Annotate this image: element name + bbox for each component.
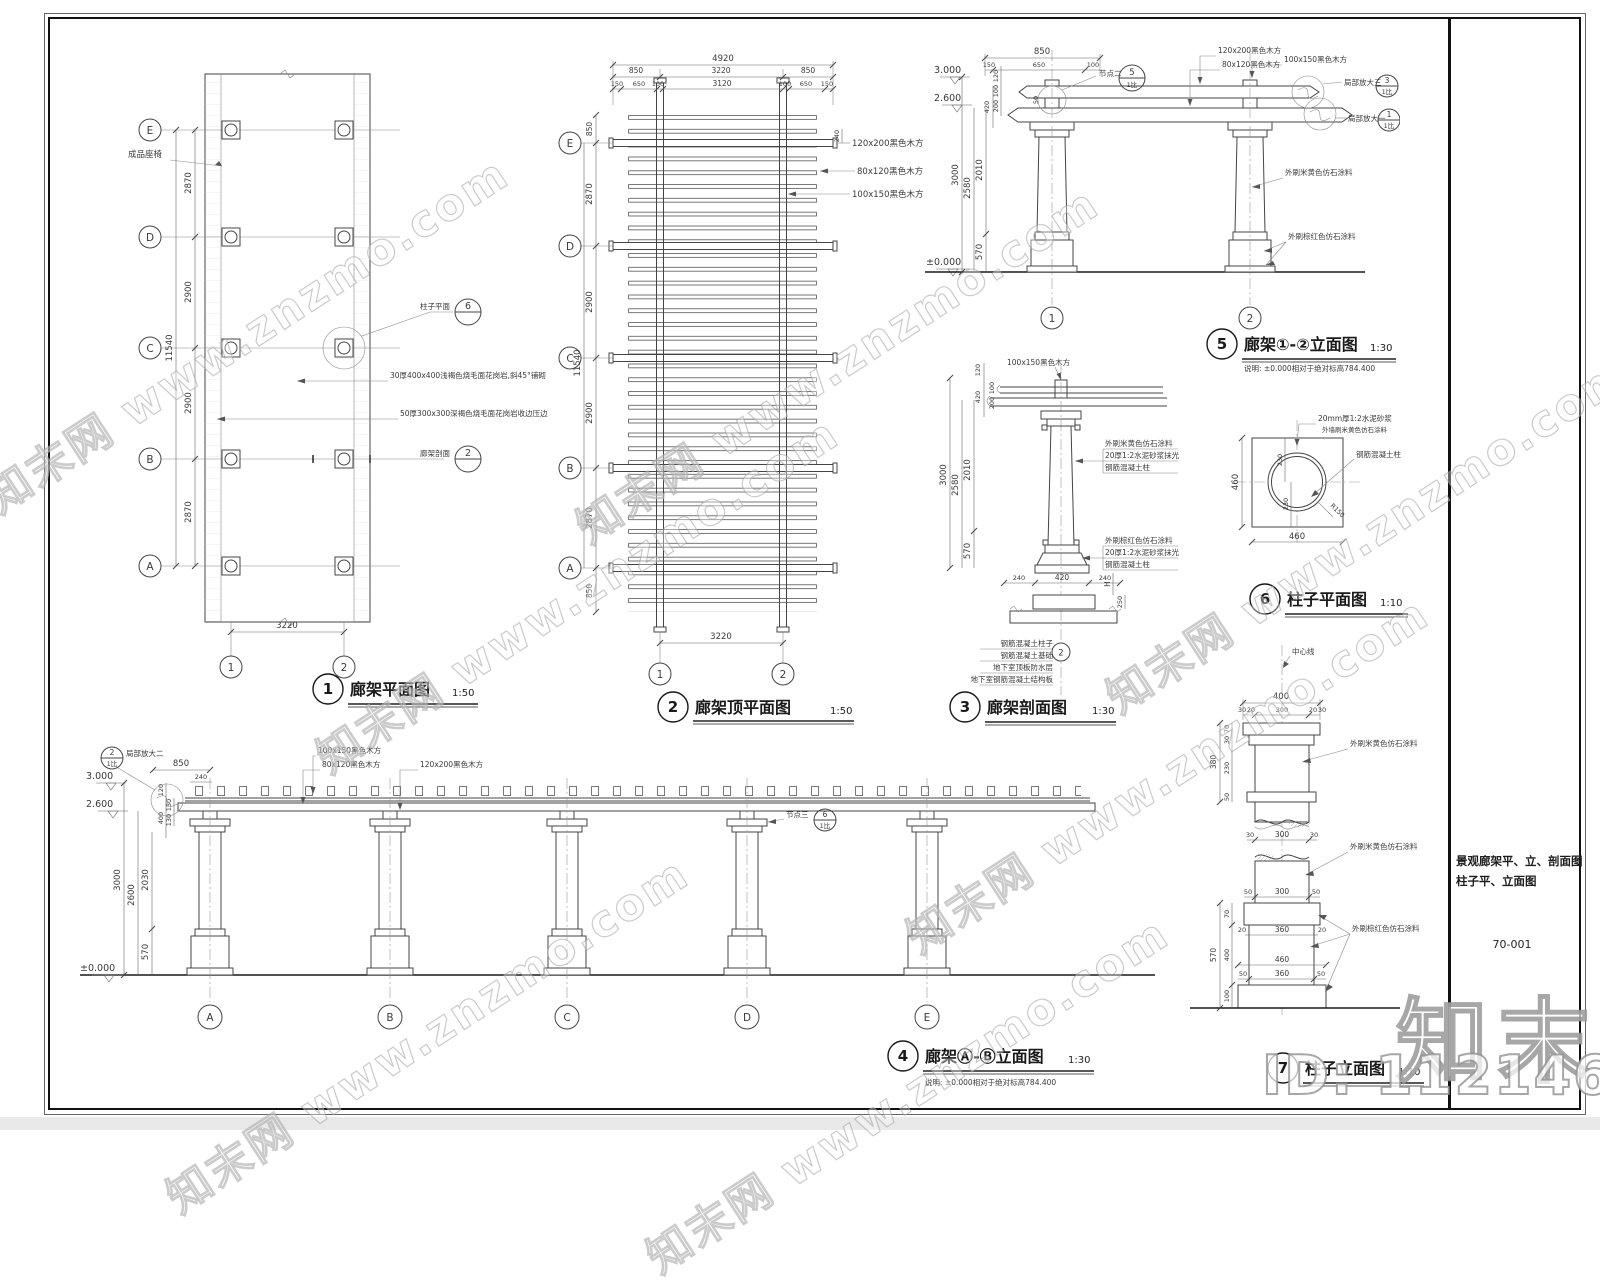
section-ref-no: 2: [465, 448, 471, 459]
axis-a: A: [206, 1012, 214, 1024]
colelev-labels: 外刷米黄色仿石涂料 外刷米黄色仿石涂料 外刷棕红色仿石涂料: [1302, 738, 1420, 992]
elevAB-structure: [80, 778, 1155, 1002]
dim-650: 650: [1033, 61, 1045, 69]
axis-1: 1: [1049, 313, 1056, 325]
section-title: 3 廊架剖面图 1:30: [950, 692, 1116, 725]
elev12-structure: [925, 50, 1365, 305]
axis-2: 2: [1247, 313, 1254, 325]
dim-2010: 2010: [975, 159, 985, 181]
dim-2600: 2600: [127, 884, 137, 906]
dim-230: 230: [1223, 762, 1231, 774]
wood-120x200-label: 120x200黑色木方: [420, 759, 484, 769]
axis-2: 2: [1058, 649, 1063, 659]
dim-570: 570: [141, 944, 151, 960]
mortar-label2: 20厚1:2水泥砂浆抹光: [1105, 547, 1180, 557]
paint-brown-label: 外刷棕红色仿石涂料: [1288, 231, 1356, 241]
dim-11540: 11540: [573, 349, 583, 376]
dim-460-left: 460: [1231, 474, 1241, 490]
colelev-top-piece: [1243, 723, 1320, 829]
dim-2870b: 2870: [585, 507, 595, 529]
dim-2870: 2870: [585, 183, 595, 205]
dim-850b: 850: [585, 584, 594, 599]
axis-1: 1: [228, 662, 235, 674]
dim-200: 200: [992, 100, 1000, 112]
roof-top-dims: 4920 850 3220 850 150 650 100 3120 100 6…: [610, 54, 836, 105]
title-text: 廊架①-②立面图: [1244, 335, 1358, 354]
dim-r50a: 50: [1239, 970, 1247, 978]
roof-left-dims: 850 2870 2900 2900 2870 850 11540: [573, 112, 599, 615]
basement-waterproof-label: 地下室顶板防水层: [993, 662, 1053, 672]
grid-label-d: D: [566, 241, 574, 253]
title-scale: 1:50: [452, 688, 474, 699]
dim-100: 100: [992, 85, 1000, 97]
node3-no: 6: [823, 810, 828, 819]
level-2600: 2.600: [86, 799, 113, 810]
dim-850a: 850: [629, 66, 644, 75]
dim-30b: 30: [1318, 706, 1326, 714]
wood-100x150-label: 100x150黑色木方: [318, 745, 382, 755]
dim-570: 570: [975, 244, 985, 260]
axis-d: D: [743, 1012, 751, 1024]
wood-100x150-label: 100x150黑色木方: [1284, 54, 1348, 64]
detail3-scale: 1比: [1382, 87, 1393, 96]
elevAB-axes: A B C D E: [198, 1005, 939, 1029]
dim-300: 300: [1276, 706, 1288, 714]
dim-230a: 230: [1276, 454, 1284, 466]
dim-n50b: 50: [1312, 888, 1320, 896]
node2-scale: 1比: [1127, 80, 1138, 89]
dim-2870: 2870: [184, 172, 194, 194]
dim-150b: 150: [821, 80, 833, 88]
title-no: 5: [1217, 335, 1227, 353]
column-plan-ref-no: 6: [465, 301, 471, 312]
level-2600: 2.600: [934, 93, 961, 104]
columns: [187, 811, 950, 975]
dim-3120: 3120: [712, 79, 731, 88]
grid-label-e: E: [567, 138, 574, 150]
dim-p20b: 20: [1318, 926, 1326, 934]
dim-100a: 100: [652, 80, 664, 88]
section-ref-label: 廊架剖面: [420, 448, 450, 458]
title-no: 7: [1278, 1059, 1288, 1077]
roof-bottom-axes: 3220 1 2: [649, 632, 794, 685]
axis-2: 2: [780, 669, 787, 681]
level-3000: 3.000: [86, 771, 113, 782]
title-block: 景观廊架平、立、剖面图 柱子平、立面图: [1456, 852, 1578, 891]
dim-q400: 400: [1223, 949, 1231, 961]
elev12-material-labels: 120x200黑色木方 80x120黑色木方 100x150黑色木方 外刷米黄色…: [1188, 45, 1356, 265]
dim-11540: 11540: [165, 334, 175, 361]
title-text: 廊架顶平面图: [695, 698, 791, 717]
paint-beige-wall-label: 外墙刷米黄色仿石涂料: [1322, 425, 1388, 434]
title-scale: 1:30: [1370, 343, 1392, 354]
cad-sheet: 景观廊架平、立、剖面图 柱子平、立面图 70-001: [0, 0, 1600, 1130]
dim-240b: 240: [1099, 574, 1111, 582]
dim-3000: 3000: [939, 464, 949, 486]
bench-label: 成品座椅: [128, 149, 163, 160]
dim-30a: 30: [1238, 706, 1246, 714]
dim-650a: 650: [633, 80, 645, 88]
dim-m30b: 30: [1310, 831, 1318, 839]
dim-q100: 100: [1223, 990, 1231, 1002]
mortar-label: 20厚1:2水泥砂浆抹光: [1105, 450, 1180, 460]
dim-r460: 460: [1275, 955, 1290, 964]
colplan-title: 6 柱子平面图 1:10: [1250, 584, 1408, 617]
basement-slab-label: 地下室钢筋混凝土结构板: [971, 674, 1054, 684]
dim-2580: 2580: [963, 177, 973, 199]
dim-p20a: 20: [1238, 926, 1246, 934]
elev12-levels: 3.000 2.600 ±0.000: [926, 65, 972, 276]
node2-no: 5: [1129, 68, 1134, 78]
column-plan-ref-label: 柱子平面: [420, 301, 450, 311]
dim-30: 30: [1223, 736, 1231, 744]
dim-420: 420: [974, 391, 982, 403]
title-text: 廊架剖面图: [987, 698, 1067, 717]
node2-label: 节点二: [1099, 69, 1122, 78]
plan-callouts: 成品座椅 柱子平面 6 30厚400x400浅褐色烧毛面花岗岩,斜45°铺砌 5…: [128, 149, 548, 472]
dim-2870b: 2870: [184, 501, 194, 523]
dim-2900b: 2900: [184, 392, 194, 414]
title-no: 6: [1260, 590, 1270, 608]
dim-240a: 240: [1013, 574, 1025, 582]
detail2-label: 局部放大二: [126, 748, 164, 758]
dim-250: 250: [1116, 596, 1124, 608]
dim-380: 380: [1209, 755, 1218, 770]
section-lower-labels: 外刷棕红色仿石涂料 20厚1:2水泥砂浆抹光 钢筋混凝土柱: [1082, 535, 1180, 570]
detail1-label: 局部放大一: [1348, 113, 1386, 123]
dim-400: 400: [1273, 692, 1289, 702]
axis-c: C: [563, 1012, 570, 1024]
title-text: 柱子立面图: [1305, 1059, 1385, 1078]
level-0: ±0.000: [80, 963, 115, 974]
title-no: 2: [668, 698, 678, 716]
dim-650b: 650: [800, 80, 812, 88]
dim-m30a: 30: [1246, 831, 1254, 839]
grid-label-b: B: [146, 454, 153, 466]
detail1-no: 1: [1387, 110, 1392, 119]
node3-scale: 1比: [820, 821, 831, 830]
wood-80x120-label: 80x120黑色木方: [322, 759, 381, 769]
grid-label-d: D: [146, 232, 154, 244]
dim-3000: 3000: [951, 164, 961, 186]
wood-120x200-label: 120x200黑色木方: [1218, 45, 1282, 55]
title-scale: 1:10: [1380, 598, 1402, 609]
dim-20b: 20: [1309, 706, 1317, 714]
page-bottom-strip: [0, 1117, 1600, 1130]
rc-col-label2: 钢筋混凝土柱: [1105, 559, 1150, 569]
title-note: 说明: ±0.000相对于绝对标高784.400: [925, 1077, 1056, 1087]
title-scale: 1:50: [830, 706, 852, 717]
dim-150: 150: [165, 799, 173, 811]
dim-240: 240: [833, 130, 841, 142]
sheet-number: 70-001: [1462, 938, 1562, 951]
paint-beige-label: 外刷米黄色仿石涂料: [1285, 167, 1353, 177]
dim-2580: 2580: [951, 474, 961, 496]
dim-2900: 2900: [585, 291, 595, 313]
dim-2030: 2030: [141, 869, 151, 891]
rc-column-label: 钢筋混凝土柱子: [1001, 638, 1054, 648]
drawing-elevation-a-b: 3.000 2.600 ±0.000 3000 2600 2030 570 12…: [60, 730, 1180, 1095]
dim-850t: 850: [585, 122, 594, 137]
dim-2010: 2010: [963, 459, 973, 481]
elevAB-top-dims: 850 240: [150, 759, 213, 782]
dim-150a: 150: [611, 80, 623, 88]
drawing-column-plan: 460 460 230 230 R150 20mm厚1:2水泥砂浆 外墙刷米黄色…: [1180, 390, 1480, 620]
axis-e: E: [924, 1012, 931, 1024]
title-no: 4: [898, 1047, 908, 1065]
dim-100: 100: [988, 382, 996, 394]
dim-850c: 850: [801, 66, 816, 75]
dim-50: 50: [1223, 793, 1231, 801]
title-text: 柱子平面图: [1287, 590, 1367, 609]
dim-120: 120: [157, 784, 165, 796]
detail1-scale: 1比: [1384, 121, 1395, 130]
title-text: 廊架Ⓐ-Ⓑ立面图: [925, 1047, 1044, 1066]
dim-r50b: 50: [1317, 970, 1325, 978]
wood-80x120-label: 80x120黑色木方: [1222, 59, 1281, 69]
plan-title: 1 廊架平面图 1:50: [313, 674, 478, 707]
dim-4920: 4920: [712, 54, 734, 64]
dim-n300: 300: [1275, 887, 1290, 896]
drawing-elevation-1-2: 3.000 2.600 ±0.000: [900, 20, 1400, 372]
colelev-title: 7 柱子立面图 1:10: [1268, 1053, 1424, 1086]
rc-col-label: 钢筋混凝土柱: [1356, 449, 1401, 459]
detail3-no: 3: [1385, 76, 1390, 85]
dim-420: 420: [983, 101, 991, 113]
title-no: 3: [960, 698, 970, 716]
dim-3220: 3220: [276, 621, 298, 631]
dim-m300: 300: [1275, 830, 1290, 839]
title-scale: 1:30: [1092, 706, 1114, 717]
elevAB-title: 4 廊架Ⓐ-Ⓑ立面图 1:30 说明: ±0.000相对于绝对标高784.400: [888, 1041, 1094, 1087]
axis-b: B: [386, 1012, 393, 1024]
node3-label: 节点三: [786, 810, 809, 819]
dim-570: 570: [1209, 948, 1218, 963]
dim-r360: 360: [1275, 969, 1290, 978]
title-scale: 1:10: [1398, 1067, 1420, 1078]
paint-brown-label: 外刷棕红色仿石涂料: [1105, 535, 1173, 545]
dim-3000: 3000: [113, 869, 123, 891]
dim-3220t: 3220: [711, 66, 730, 75]
plan-bottom-axes: 3220 1 2: [220, 621, 355, 678]
sheet-title-line2: 柱子平、立面图: [1456, 872, 1578, 892]
title-text: 廊架平面图: [350, 680, 430, 699]
title-no: 1: [323, 680, 333, 698]
dim-3220: 3220: [710, 632, 732, 642]
dim-2900b: 2900: [585, 402, 595, 424]
drawing-pergola-plan: E D C B A 2870 2900 2900 2870 11540: [100, 60, 600, 720]
paint-beige-label1: 外刷米黄色仿石涂料: [1350, 738, 1418, 748]
elev12-top-dims: 850 150 650 100: [982, 47, 1103, 76]
roof-title: 2 廊架顶平面图 1:50: [658, 692, 854, 724]
elevAB-left-dims: 3000 2600 2030 570 120 400 150 130: [113, 780, 174, 978]
detail2-scale: 1比: [107, 759, 118, 768]
rc-col-label: 钢筋混凝土柱: [1105, 462, 1150, 472]
dim-H: H: [1103, 581, 1112, 587]
elevAB-material-labels: 100x150黑色木方 80x120黑色木方 120x200黑色木方: [301, 745, 484, 810]
rc-foundation-label: 钢筋混凝土基础: [1001, 650, 1054, 660]
grid-label-a: A: [566, 563, 574, 575]
dim-150: 150: [983, 61, 995, 69]
paint-beige-label2: 外刷米黄色仿石涂料: [1350, 841, 1418, 851]
paving1-label: 30厚400x400浅褐色烧毛面花岗岩,斜45°铺砌: [390, 370, 546, 380]
dim-420: 420: [1055, 573, 1070, 582]
dim-p360: 360: [1275, 925, 1290, 934]
grid-label-c: C: [146, 343, 153, 355]
title-note: 说明: ±0.000相对于绝对标高784.400: [1244, 363, 1375, 372]
dim-70: 70: [1223, 725, 1231, 733]
dim-850: 850: [173, 759, 189, 769]
dim-100t: 100: [1087, 61, 1099, 69]
paint-beige-label: 外刷米黄色仿石涂料: [1105, 438, 1173, 448]
elev12-axes: 1 2: [1041, 307, 1261, 329]
dim-n50a: 50: [1244, 888, 1252, 896]
dim-50: 50: [1032, 96, 1040, 104]
dim-850: 850: [1034, 47, 1050, 57]
dim-q70: 70: [1223, 910, 1231, 918]
dim-2900: 2900: [184, 281, 194, 303]
section-upper-labels: 外刷米黄色仿石涂料 20厚1:2水泥砂浆抹光 钢筋混凝土柱: [1075, 438, 1180, 473]
dim-100b: 100: [779, 80, 791, 88]
centerline-label: 中心线: [1292, 646, 1315, 656]
dim-230b: 230: [1282, 498, 1290, 510]
dim-570: 570: [963, 543, 973, 559]
dim-240: 240: [195, 773, 207, 781]
dim-460-bottom: 460: [1289, 532, 1305, 542]
paving2-label: 50厚300x300深褐色烧毛面花岗岩收边压边: [400, 408, 548, 418]
title-scale: 1:30: [1068, 1055, 1090, 1066]
level-3000: 3.000: [934, 65, 961, 76]
dim-120: 120: [992, 70, 1000, 82]
dim-200: 200: [988, 397, 996, 409]
drawing-column-elevation: 中心线 400 30 20 300 20 30 38: [1150, 635, 1470, 1090]
grid-label-e: E: [147, 125, 154, 137]
grid-label-b: B: [566, 463, 573, 475]
paint-brown-label: 外刷棕红色仿石涂料: [1352, 923, 1420, 933]
level-0: ±0.000: [926, 257, 961, 268]
axis-1: 1: [657, 669, 664, 681]
detail2-no: 2: [110, 748, 115, 757]
grid-label-a: A: [146, 561, 154, 573]
axis-2: 2: [341, 662, 348, 674]
dim-20a: 20: [1247, 706, 1255, 714]
section-left-dims: 3000 2580 2010 570 120 420 100 200: [939, 363, 996, 571]
mortar-label: 20mm厚1:2水泥砂浆: [1318, 413, 1392, 423]
dim-120: 120: [974, 364, 982, 376]
section-foundation-labels: 钢筋混凝土柱子 钢筋混凝土基础 地下室顶板防水层 地下室钢筋混凝土结构板 2: [971, 638, 1071, 685]
sheet-title-line1: 景观廊架平、立、剖面图: [1456, 852, 1578, 872]
